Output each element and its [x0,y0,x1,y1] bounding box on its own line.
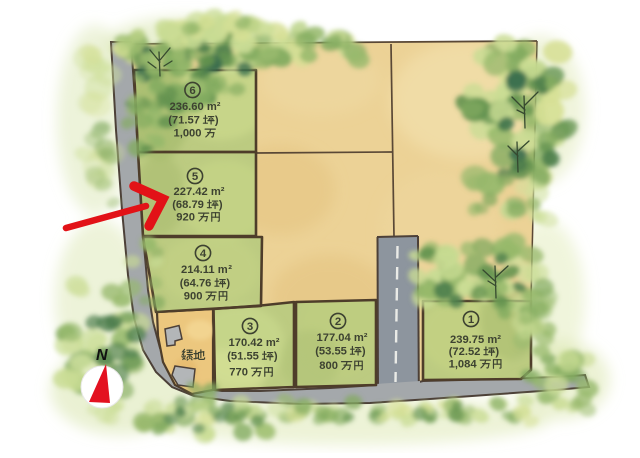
svg-text:N: N [96,347,108,364]
svg-text:770: 770 [229,367,248,379]
svg-text:(68.79: (68.79 [172,199,204,211]
svg-text:5: 5 [192,171,199,183]
svg-text:170.42 m: 170.42 m [229,337,276,349]
svg-text:4: 4 [200,248,207,260]
svg-text:²: ² [217,101,221,113]
svg-text:1,084: 1,084 [449,359,478,371]
svg-text:²: ² [497,334,501,346]
svg-text:3: 3 [247,321,253,333]
svg-text:214.11 m: 214.11 m [181,264,228,276]
svg-text:(53.55: (53.55 [315,346,347,358]
svg-text:): ) [226,278,230,290]
svg-text:): ) [274,351,278,363]
svg-text:900: 900 [184,291,203,303]
svg-text:): ) [362,346,366,358]
svg-text:²: ² [221,186,225,198]
svg-text:2: 2 [335,316,341,328]
svg-text:6: 6 [189,85,195,97]
svg-text:): ) [219,199,223,211]
svg-text:177.04 m: 177.04 m [317,332,364,344]
svg-text:236.60 m: 236.60 m [170,101,217,113]
svg-text:227.42 m: 227.42 m [174,186,221,198]
svg-text:239.75 m: 239.75 m [450,334,497,346]
svg-text:²: ² [228,264,232,276]
svg-text:1: 1 [468,314,475,326]
svg-text:800: 800 [319,360,338,372]
svg-text:920: 920 [176,212,195,224]
svg-text:(64.76: (64.76 [180,278,212,290]
svg-text:): ) [495,346,499,358]
svg-text:(51.55: (51.55 [227,351,259,363]
svg-text:): ) [215,115,219,127]
svg-text:(72.52: (72.52 [449,346,481,358]
svg-text:1,000: 1,000 [174,128,202,140]
svg-text:²: ² [364,332,368,344]
svg-text:²: ² [276,337,280,349]
svg-text:(71.57: (71.57 [168,115,200,127]
